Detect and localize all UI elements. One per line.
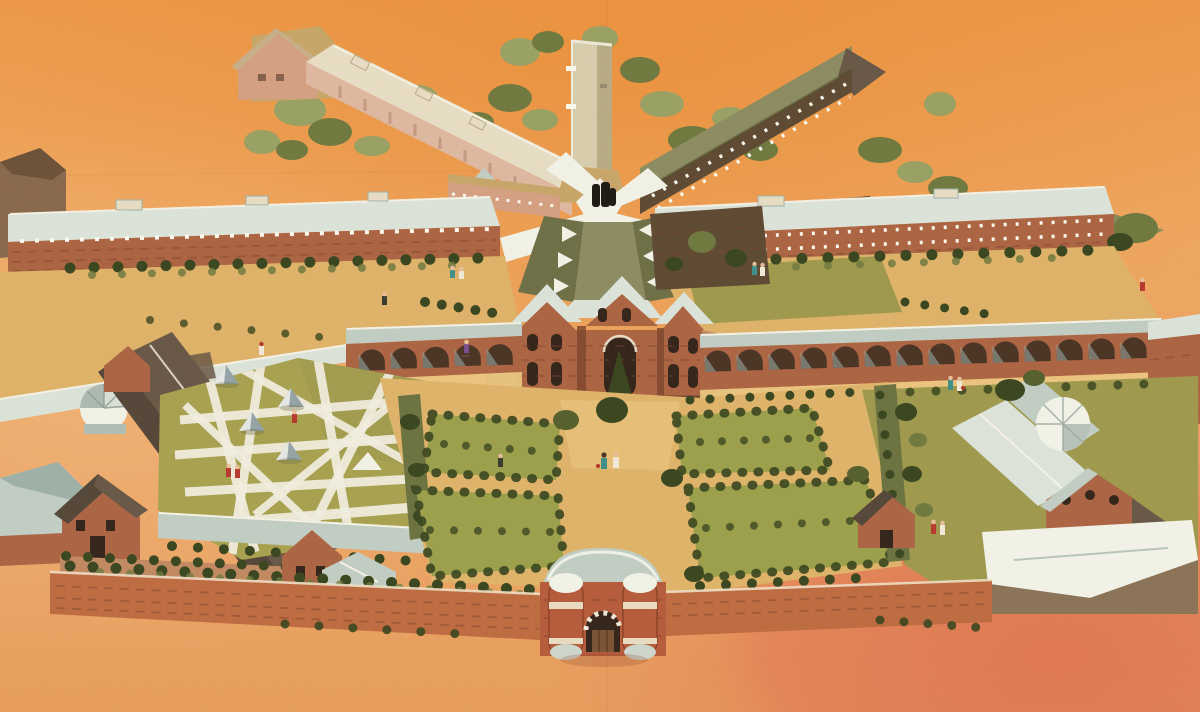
- painting-canvas: [0, 0, 1200, 712]
- watercolor-prison-aerial-illustration: [0, 0, 1200, 712]
- paper-texture-overlay: [0, 0, 1200, 712]
